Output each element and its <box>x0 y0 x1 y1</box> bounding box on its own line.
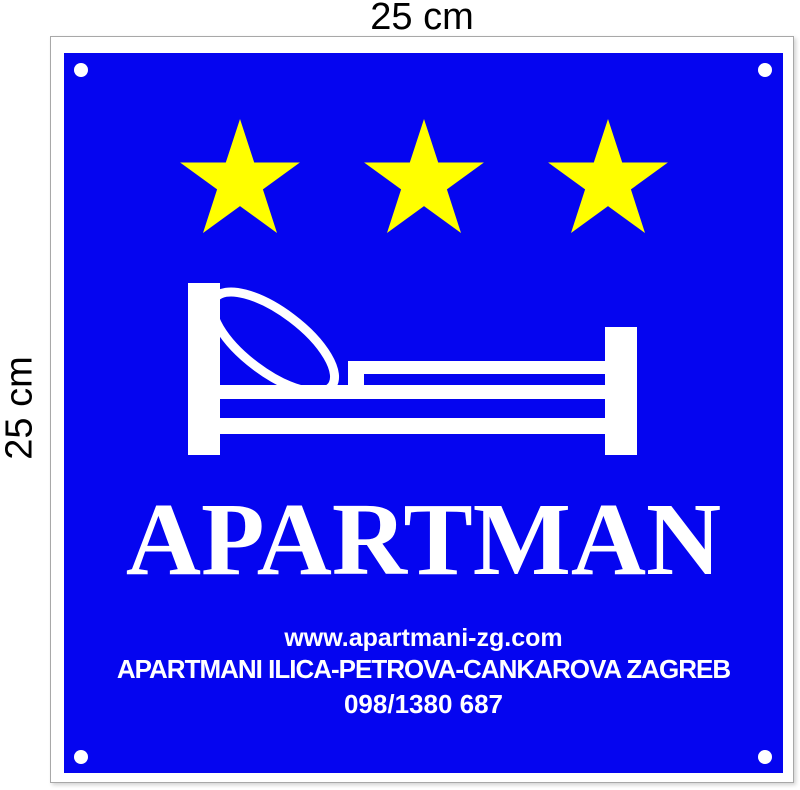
sign-mockup: 25 cm 25 cm <box>0 0 800 790</box>
top-dimension-label: 25 cm <box>50 0 794 39</box>
star-icon <box>175 117 305 247</box>
star-rating-row <box>64 117 783 247</box>
sign-title: APARTMAN <box>64 485 783 595</box>
address-text: APARTMANI ILICA-PETROVA-CANKAROVA ZAGREB <box>64 654 783 685</box>
star-icon <box>359 117 489 247</box>
left-dimension-label: 25 cm <box>0 356 42 459</box>
website-text: www.apartmani-zg.com <box>64 623 783 653</box>
sign-blue-panel: APARTMAN www.apartmani-zg.com APARTMANI … <box>64 53 783 773</box>
apartment-sign-plate: APARTMAN www.apartmani-zg.com APARTMANI … <box>50 36 794 783</box>
mounting-hole-icon <box>74 63 88 77</box>
bed-icon <box>183 279 643 459</box>
mounting-hole-icon <box>74 750 88 764</box>
phone-text: 098/1380 687 <box>64 689 783 720</box>
mounting-hole-icon <box>758 750 772 764</box>
mounting-hole-icon <box>758 63 772 77</box>
star-icon <box>543 117 673 247</box>
